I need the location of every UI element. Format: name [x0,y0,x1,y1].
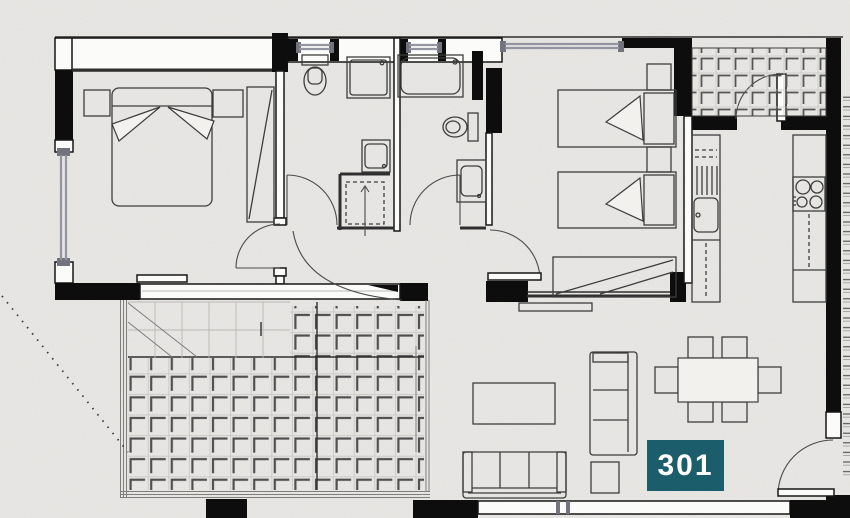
hallway [692,48,826,116]
dining-table-symbol [678,358,758,402]
hallway-tiles [692,48,826,116]
neighbor-terrace-strip [843,96,850,478]
unit-number-badge: 301 [647,440,724,491]
terrace [120,300,430,498]
floor-plan: 301 [0,0,850,518]
unit-number-label: 301 [657,449,713,483]
